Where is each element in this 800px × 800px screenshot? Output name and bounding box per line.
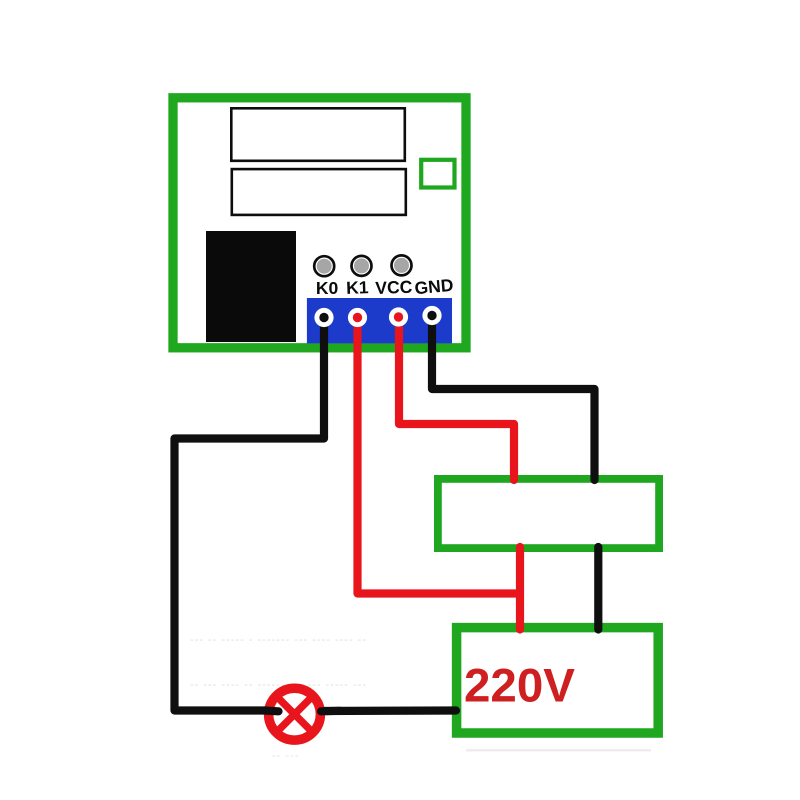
svg-text:220V: 220V bbox=[464, 660, 575, 713]
svg-text:--- -- ----- - ------- --- ---: --- -- ----- - ------- --- ---- ---- -- bbox=[190, 634, 367, 646]
svg-text:GND: GND bbox=[414, 275, 454, 298]
svg-text:-- ---: -- --- bbox=[272, 750, 299, 762]
svg-text:VCC: VCC bbox=[375, 277, 413, 298]
svg-text:K1: K1 bbox=[346, 277, 369, 298]
svg-text:K0: K0 bbox=[316, 278, 339, 298]
